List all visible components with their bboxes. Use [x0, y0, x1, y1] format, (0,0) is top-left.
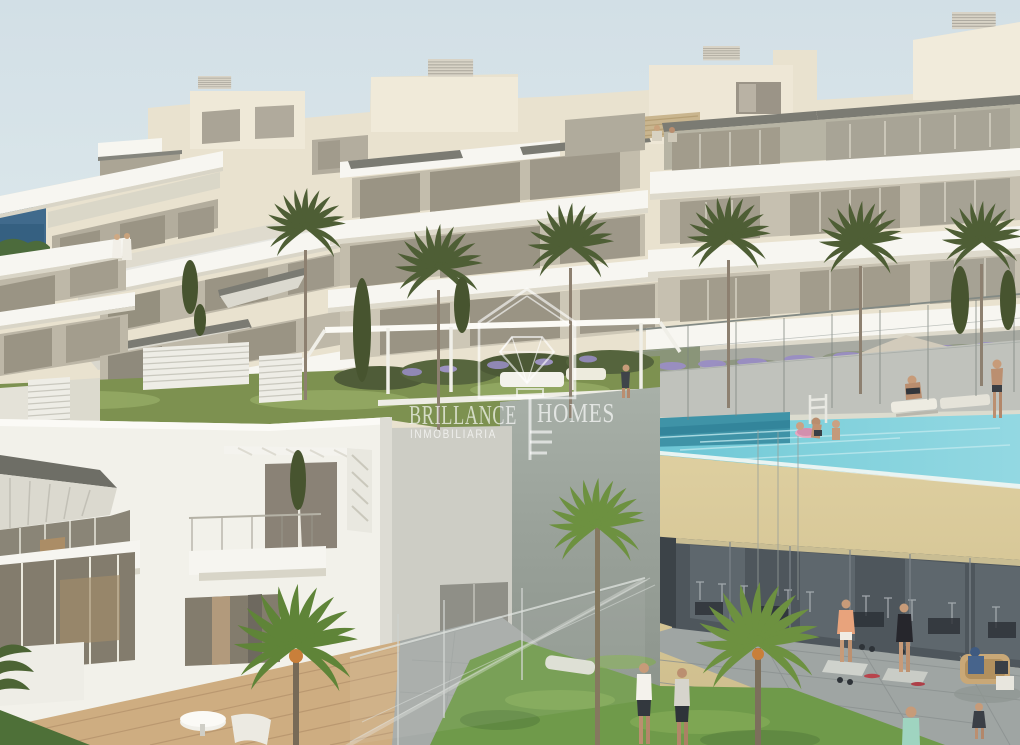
svg-text:HOMES: HOMES: [537, 398, 615, 428]
svg-text:BRILLANCE: BRILLANCE: [409, 400, 517, 430]
svg-text:INMOBILIARIA: INMOBILIARIA: [410, 427, 497, 441]
